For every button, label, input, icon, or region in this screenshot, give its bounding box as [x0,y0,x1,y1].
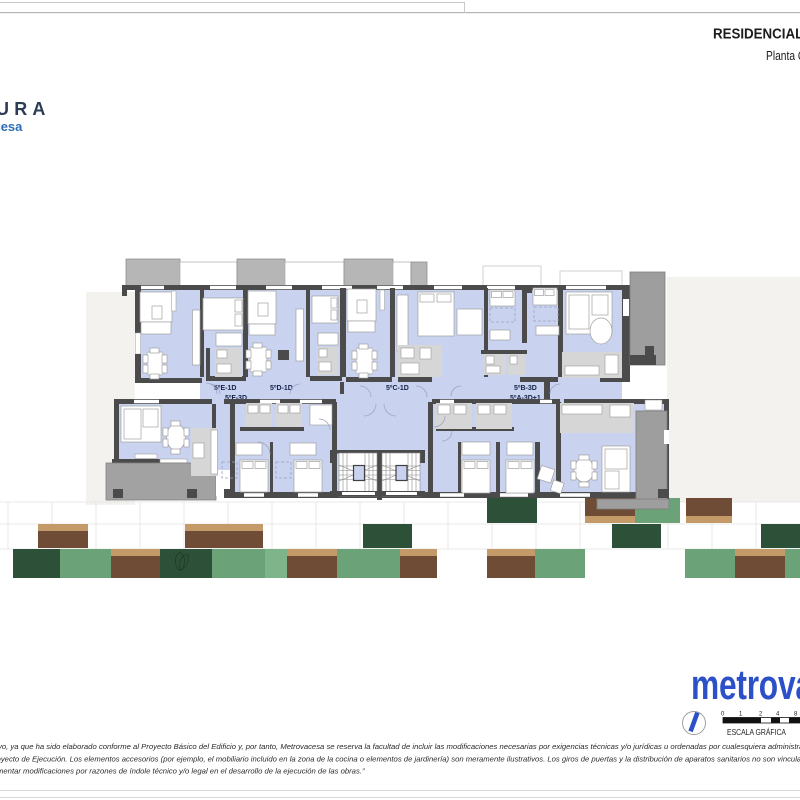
svg-text:mentar modificaciones por razo: mentar modificaciones por razones de índ… [0,767,365,776]
svg-text:RESIDENCIAL VENTURA: RESIDENCIAL VENTURA [713,26,800,43]
svg-text:Planta Quinta: Planta Quinta [766,48,800,63]
svg-text:5ºC-1D: 5ºC-1D [386,385,409,392]
svg-text:5ºE-1D: 5ºE-1D [214,385,236,392]
svg-text:URA: URA [0,99,51,119]
svg-text:royecto de Ejecución. Los elem: royecto de Ejecución. Los elementos acce… [0,754,800,763]
svg-text:metrovacesa: metrovacesa [691,661,800,708]
svg-text:ESCALA GRÁFICA: ESCALA GRÁFICA [727,727,786,737]
svg-text:vacesa: vacesa [0,119,23,134]
svg-text:5ºD-1D: 5ºD-1D [270,385,293,392]
svg-text:vo, ya que ha sido elaborado c: vo, ya que ha sido elaborado conforme al… [0,742,800,751]
svg-text:5ºB-3D: 5ºB-3D [514,385,537,392]
